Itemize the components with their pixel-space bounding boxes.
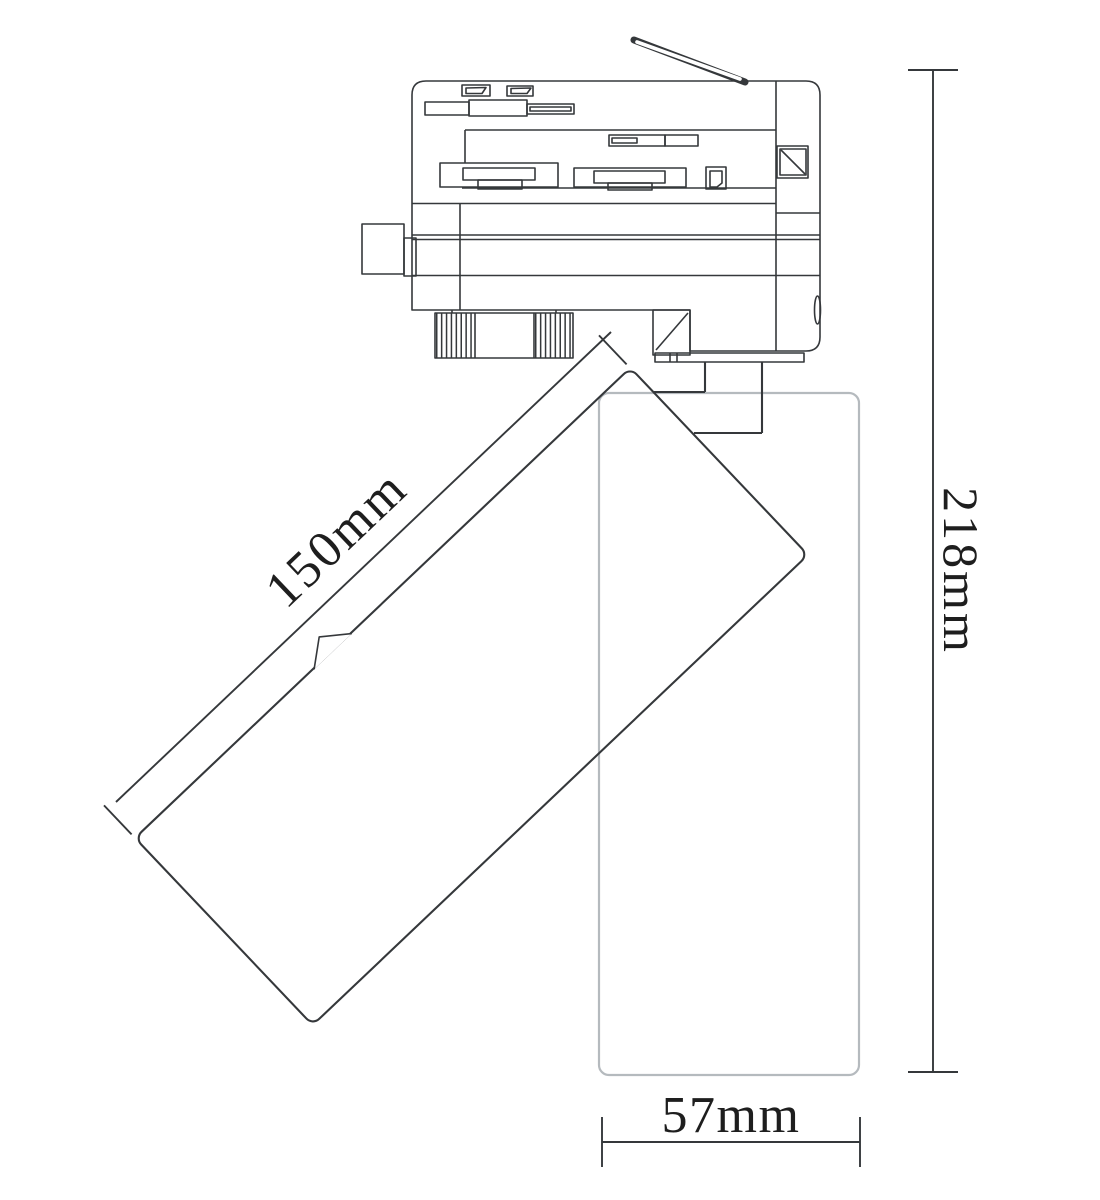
- lamp-angled-outline: [135, 368, 808, 1025]
- left-contact-assembly: [440, 163, 558, 189]
- track-spotlight-dimension-drawing: 150mm 218mm 57mm: [0, 0, 1100, 1200]
- knurled-adjuster-knob: [435, 310, 573, 358]
- track-adapter: [362, 40, 821, 433]
- top-slide-bar: [425, 100, 574, 116]
- corner-brace-box: [653, 310, 690, 355]
- middle-contact-assembly: [574, 168, 686, 190]
- adapter-horizontal-seams: [412, 130, 820, 310]
- side-tab: [362, 224, 416, 276]
- yoke-notch-mask: [300, 619, 351, 669]
- release-lever: [634, 40, 745, 82]
- adapter-body-outline: [412, 81, 820, 351]
- lamp-body-vertical-ghost: [599, 393, 859, 1075]
- dimension-height-label: 218mm: [933, 487, 989, 655]
- lamp-ghost-outline: [599, 393, 859, 1075]
- top-contact-slots: [462, 85, 533, 96]
- small-latch-detail: [706, 167, 726, 189]
- mounting-plate: [655, 353, 804, 362]
- dimension-height: 218mm: [908, 70, 989, 1072]
- dimension-width: 57mm: [602, 1087, 860, 1167]
- endcap-window: [777, 146, 808, 178]
- dimension-width-label: 57mm: [662, 1087, 801, 1144]
- lamp-body-angled: [122, 354, 808, 1025]
- dimension-length-tick-top: [599, 335, 627, 364]
- pivot-stem: [654, 362, 762, 433]
- dimension-length: 150mm: [104, 332, 627, 834]
- dimension-length-line: [116, 332, 611, 802]
- dimension-length-tick-bottom: [104, 805, 132, 834]
- inner-terminal-block: [609, 135, 698, 146]
- dimension-drawing-page: 150mm 218mm 57mm: [0, 0, 1100, 1200]
